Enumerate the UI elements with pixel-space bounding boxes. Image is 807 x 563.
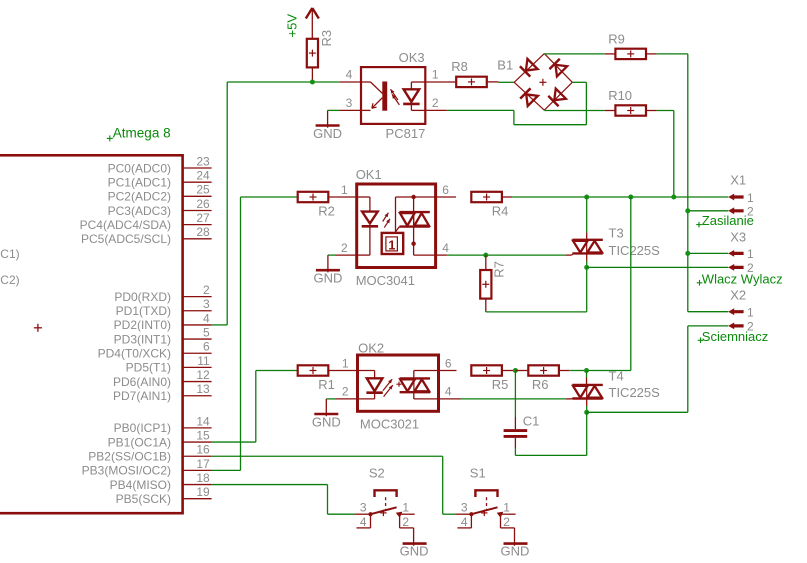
svg-text:TIC225S: TIC225S (609, 243, 661, 258)
svg-text:R2: R2 (318, 204, 335, 219)
svg-text:PC1(ADC1): PC1(ADC1) (108, 176, 171, 190)
svg-text:Atmega 8: Atmega 8 (113, 125, 171, 140)
svg-text:PD4(T0/XCK): PD4(T0/XCK) (98, 347, 171, 361)
svg-text:4: 4 (442, 241, 449, 255)
svg-text:4: 4 (445, 385, 452, 399)
svg-text:17: 17 (196, 457, 210, 471)
svg-text:1: 1 (747, 191, 754, 205)
svg-text:4: 4 (203, 311, 210, 325)
svg-text:6: 6 (203, 340, 210, 354)
svg-text:PB0(ICP1): PB0(ICP1) (114, 421, 171, 435)
svg-text:PB5(SCK): PB5(SCK) (116, 492, 171, 506)
svg-text:3: 3 (461, 501, 468, 515)
svg-text:GND: GND (313, 271, 342, 286)
svg-text:2: 2 (432, 96, 439, 110)
svg-text:5: 5 (203, 325, 210, 339)
svg-text:4: 4 (360, 515, 367, 529)
svg-text:R10: R10 (608, 88, 632, 103)
svg-text:R7: R7 (492, 261, 507, 278)
svg-text:18: 18 (196, 471, 210, 485)
svg-text:PD3(INT1): PD3(INT1) (114, 332, 171, 346)
svg-text:R8: R8 (451, 59, 468, 74)
svg-text:C1): C1) (0, 247, 19, 261)
svg-text:25: 25 (196, 183, 210, 197)
svg-text:4: 4 (461, 515, 468, 529)
svg-text:28: 28 (196, 225, 210, 239)
svg-text:1: 1 (388, 238, 395, 252)
svg-text:1: 1 (402, 501, 409, 515)
svg-text:Zasilanie: Zasilanie (702, 213, 754, 228)
svg-text:MOC3021: MOC3021 (360, 417, 419, 432)
svg-text:S1: S1 (470, 466, 486, 481)
svg-text:15: 15 (196, 428, 210, 442)
svg-text:19: 19 (196, 485, 210, 499)
svg-text:GND: GND (312, 415, 341, 430)
svg-text:GND: GND (313, 126, 342, 141)
svg-text:12: 12 (196, 368, 210, 382)
svg-text:1: 1 (341, 183, 348, 197)
svg-text:R1: R1 (318, 377, 335, 392)
svg-text:PB2(SS/OC1B): PB2(SS/OC1B) (88, 450, 171, 464)
svg-text:R5: R5 (492, 377, 509, 392)
svg-text:S2: S2 (369, 466, 385, 481)
svg-text:PC2(ADC2): PC2(ADC2) (108, 190, 171, 204)
svg-text:R6: R6 (532, 377, 549, 392)
svg-text:PC0(ADC0): PC0(ADC0) (108, 161, 171, 175)
svg-text:3: 3 (346, 96, 353, 110)
svg-text:2: 2 (342, 385, 349, 399)
svg-text:R9: R9 (608, 32, 625, 47)
svg-text:R3: R3 (319, 30, 334, 47)
svg-text:B1: B1 (497, 57, 513, 72)
svg-text:PC817: PC817 (386, 126, 426, 141)
svg-text:PD0(RXD): PD0(RXD) (114, 290, 171, 304)
svg-text:PB3(MOSI/OC2): PB3(MOSI/OC2) (82, 464, 171, 478)
svg-text:GND: GND (400, 544, 429, 559)
svg-text:PD7(AIN1): PD7(AIN1) (113, 389, 171, 403)
svg-text:13: 13 (196, 382, 210, 396)
svg-text:6: 6 (445, 356, 452, 370)
svg-text:PD5(T1): PD5(T1) (126, 361, 171, 375)
svg-text:1: 1 (747, 247, 754, 261)
svg-text:PB1(OC1A): PB1(OC1A) (108, 435, 171, 449)
svg-text:OK1: OK1 (356, 167, 382, 182)
svg-text:GND: GND (501, 544, 530, 559)
svg-text:PD1(TXD): PD1(TXD) (116, 304, 171, 318)
svg-text:OK2: OK2 (358, 340, 384, 355)
svg-text:X1: X1 (730, 173, 746, 188)
svg-text:2: 2 (402, 515, 409, 529)
svg-text:TIC225S: TIC225S (609, 385, 661, 400)
svg-text:2: 2 (503, 515, 510, 529)
svg-text:PC4(ADC4/SDA): PC4(ADC4/SDA) (80, 218, 171, 232)
svg-text:2: 2 (341, 241, 348, 255)
svg-text:27: 27 (196, 211, 210, 225)
svg-text:1: 1 (342, 356, 349, 370)
svg-text:16: 16 (196, 443, 210, 457)
svg-text:R4: R4 (492, 204, 509, 219)
svg-text:3: 3 (360, 501, 367, 515)
svg-text:11: 11 (197, 354, 210, 368)
svg-text:T4: T4 (609, 368, 624, 383)
svg-text:14: 14 (196, 414, 210, 428)
svg-text:4: 4 (346, 68, 353, 82)
svg-text:PC5(ADC5/SCL): PC5(ADC5/SCL) (81, 232, 171, 246)
svg-text:PD2(INT0): PD2(INT0) (114, 318, 171, 332)
svg-text:1: 1 (432, 68, 439, 82)
svg-text:1: 1 (503, 501, 510, 515)
svg-text:T3: T3 (609, 226, 624, 241)
svg-text:X3: X3 (730, 229, 746, 244)
svg-text:MOC3041: MOC3041 (356, 273, 415, 288)
svg-text:X2: X2 (730, 287, 746, 302)
svg-text:PB4(MISO): PB4(MISO) (110, 478, 171, 492)
svg-text:6: 6 (442, 183, 449, 197)
svg-text:OK3: OK3 (399, 50, 425, 65)
svg-text:C1: C1 (523, 413, 540, 428)
svg-text:+5V: +5V (285, 14, 300, 38)
svg-text:PD6(AIN0): PD6(AIN0) (113, 375, 171, 389)
svg-text:C2): C2) (0, 273, 19, 287)
svg-text:Wlacz Wylacz: Wlacz Wylacz (702, 271, 783, 286)
svg-text:Sciemniacz: Sciemniacz (702, 329, 768, 344)
svg-text:2: 2 (203, 283, 210, 297)
svg-text:26: 26 (196, 197, 210, 211)
svg-text:PC3(ADC3): PC3(ADC3) (108, 204, 171, 218)
svg-text:1: 1 (747, 306, 754, 320)
svg-text:23: 23 (196, 154, 210, 168)
svg-text:3: 3 (203, 297, 210, 311)
svg-text:24: 24 (196, 169, 210, 183)
